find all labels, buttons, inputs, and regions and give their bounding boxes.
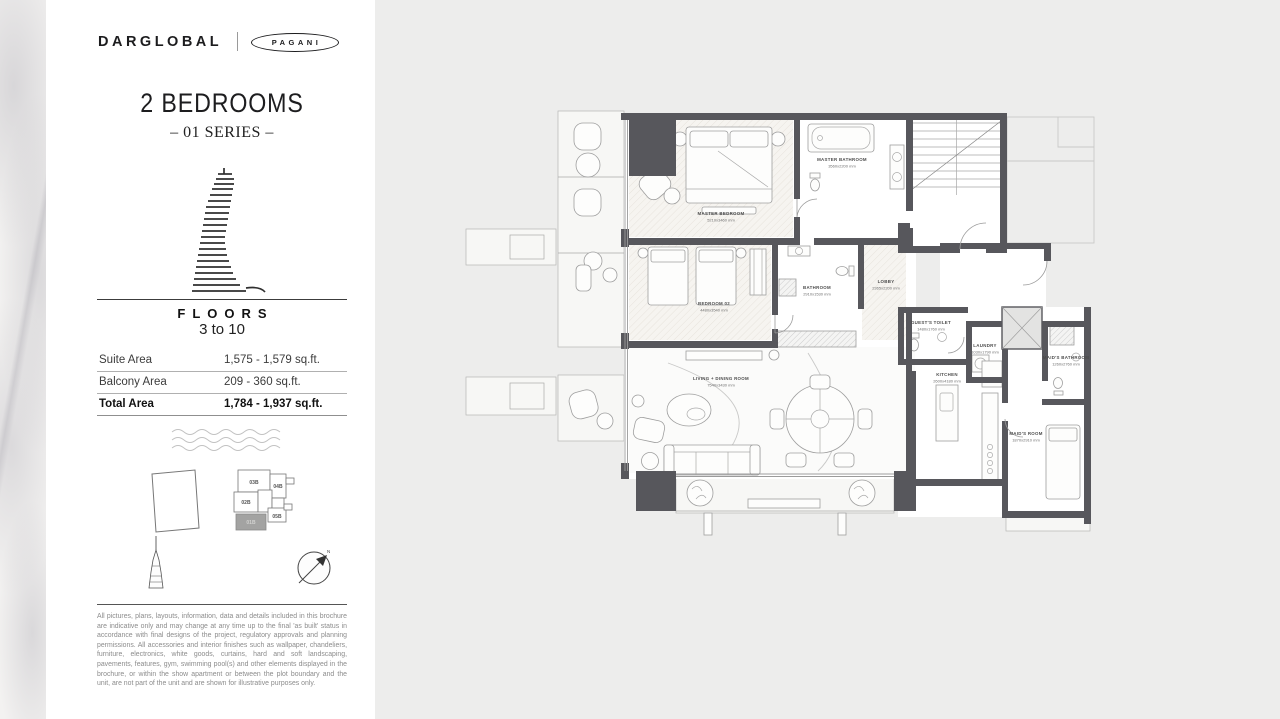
unit-label: 02B <box>241 500 251 506</box>
burj-silhouette-icon <box>149 536 163 588</box>
room-name: BEDROOM 02 <box>698 301 730 306</box>
brochure-page: DARGLOBAL PAGANI 2 BEDROOMS – 01 SERIES … <box>0 0 1280 719</box>
compass-north-label: N <box>327 549 330 554</box>
room-name: MAID'S ROOM <box>1009 431 1042 436</box>
neighbour-outline <box>1007 117 1094 243</box>
darglobal-logo: DARGLOBAL <box>98 34 222 50</box>
room-dims: 4480x3540 mm <box>700 308 728 313</box>
room-dims: 7540x3430 mm <box>707 383 735 388</box>
room-dims: 2910x1530 mm <box>803 292 831 297</box>
room-dims: 2365x2200 mm <box>872 286 900 291</box>
row-label: Balcony Area <box>99 376 224 388</box>
room-name: KITCHEN <box>936 372 958 377</box>
area-table: Suite Area 1,575 - 1,579 sq.ft. Balcony … <box>97 350 347 416</box>
compass-icon: N <box>298 549 330 584</box>
pagani-logo: PAGANI <box>251 33 339 52</box>
unit-label: 03B <box>249 480 259 486</box>
room-name: LOBBY <box>878 279 895 284</box>
room-dims: 5210x3460 mm <box>707 218 735 223</box>
page-title: 2 BEDROOMS <box>97 88 347 119</box>
room-dims: 1480x1760 mm <box>917 327 945 332</box>
row-value: 1,784 - 1,937 sq.ft. <box>224 398 347 410</box>
room-dims: 1260x2760 mm <box>1052 362 1080 367</box>
table-row-total: Total Area 1,784 - 1,937 sq.ft. <box>97 394 347 416</box>
disclaimer-text: All pictures, plans, layouts, informatio… <box>97 612 347 689</box>
room-name: GUEST'S TOILET <box>911 320 951 325</box>
unit-label: 05B <box>272 514 282 520</box>
floors-label: FLOORS <box>97 306 347 321</box>
room-name: BATHROOM <box>803 285 831 290</box>
row-label: Total Area <box>99 398 224 410</box>
room-dims: 3560x2200 mm <box>828 164 856 169</box>
room-name: LIVING + DINING ROOM <box>693 376 749 381</box>
floors-range: 3 to 10 <box>97 321 347 338</box>
logo-divider <box>237 32 238 51</box>
room-name: MAID'S BATHROOM <box>1043 355 1089 360</box>
table-row: Suite Area 1,575 - 1,579 sq.ft. <box>97 350 347 372</box>
section-divider <box>97 299 347 300</box>
key-plan: 03B 04B 02B 05B 01B N <box>138 458 340 603</box>
room-dims: 2600x4180 mm <box>933 379 961 384</box>
tower-illustration-icon <box>172 168 274 298</box>
series-subtitle: – 01 SERIES – <box>97 124 347 142</box>
highlighted-unit-label: 01B <box>246 520 256 526</box>
row-label: Suite Area <box>99 354 224 366</box>
room-dims: 1030x1790 mm <box>971 350 999 355</box>
room-dims: 1870x2910 mm <box>1012 438 1040 443</box>
footer-divider <box>97 604 347 605</box>
room-name: MASTER BATHROOM <box>817 157 867 162</box>
marble-texture-strip <box>0 0 46 719</box>
table-row: Balcony Area 209 - 360 sq.ft. <box>97 372 347 394</box>
row-value: 1,575 - 1,579 sq.ft. <box>224 354 347 366</box>
room-name: MASTER BEDROOM <box>698 211 745 216</box>
floor-plan: MASTER BEDROOM 5210x3460 mm MASTER BATHR… <box>458 103 1106 545</box>
unit-label: 04B <box>273 484 283 490</box>
row-value: 209 - 360 sq.ft. <box>224 376 347 388</box>
room-name: LAUNDRY <box>973 343 996 348</box>
plot-outline <box>152 470 199 532</box>
waves-icon <box>170 427 288 453</box>
